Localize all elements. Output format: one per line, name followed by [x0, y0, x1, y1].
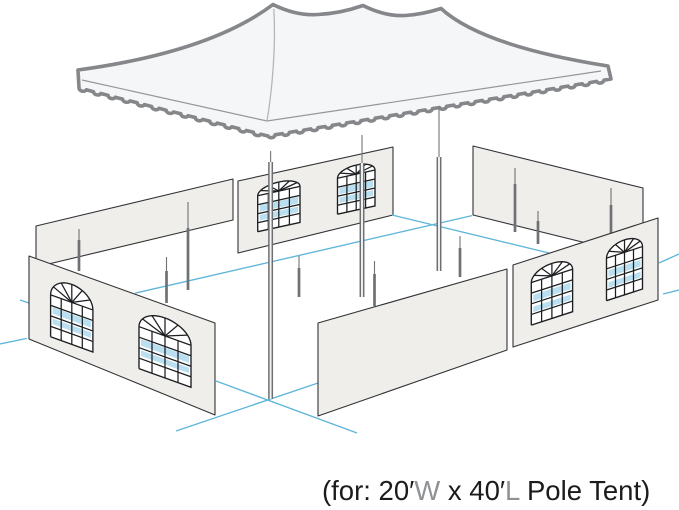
svg-text:(for: 20′W x 40′L Pole Tent): (for: 20′W x 40′L Pole Tent) [322, 475, 650, 506]
